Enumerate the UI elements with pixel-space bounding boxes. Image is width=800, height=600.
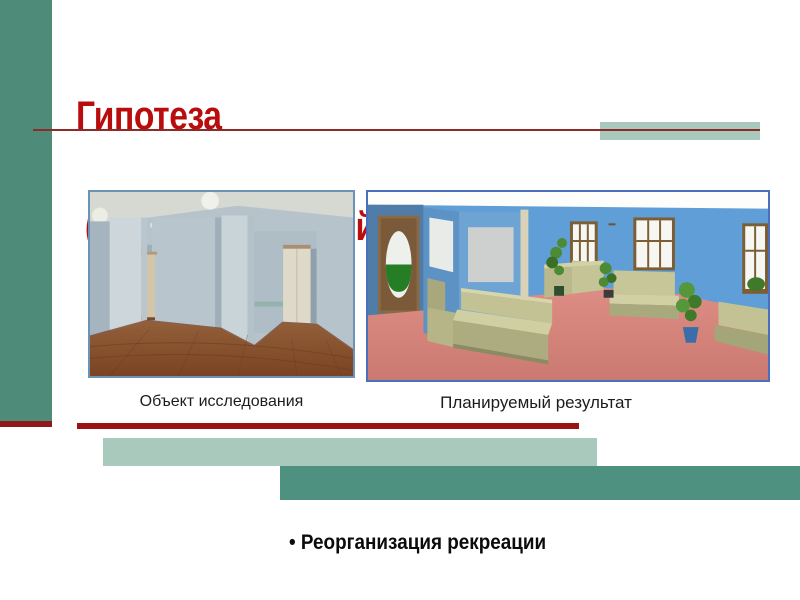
planned-result-image-frame (366, 190, 770, 382)
light-teal-bar (103, 438, 597, 466)
research-object-image-frame (88, 190, 355, 378)
left-accent-red-bar (0, 421, 52, 427)
planned-room-render (368, 192, 768, 380)
hallway-floor (90, 321, 353, 376)
bullet-marker: • (289, 531, 296, 554)
left-accent-bar (0, 0, 52, 421)
bullet-line: • Реорганизация рекреации (268, 507, 546, 579)
dark-teal-bar (280, 466, 800, 500)
presentation-slide: Гипотеза (предполагаемый ответ на вопрос… (0, 0, 800, 600)
title-underline (33, 129, 760, 131)
title-underline-accent (600, 122, 760, 140)
caption-research-object: Объект исследования (88, 393, 355, 411)
room-door (378, 216, 420, 314)
bullet-label: Реорганизация рекреации (301, 531, 546, 554)
caption-planned-result: Планируемый результат (366, 393, 706, 413)
red-divider-bar (77, 423, 579, 429)
hallway-photo (90, 192, 353, 376)
